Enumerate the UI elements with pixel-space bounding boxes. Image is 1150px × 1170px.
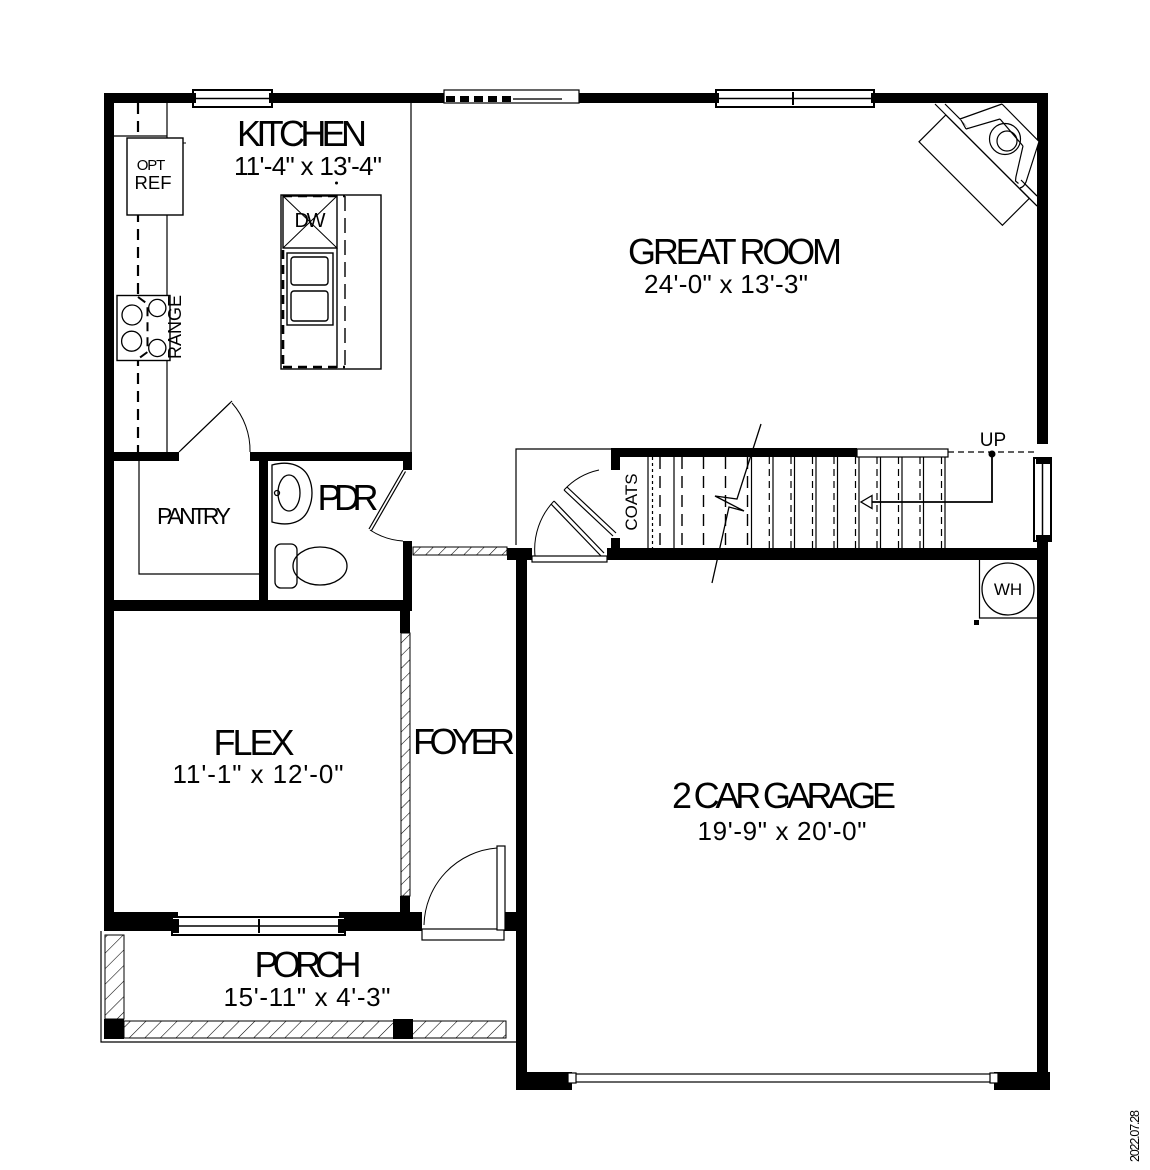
- svg-text:19'-9" x 20'-0": 19'-9" x 20'-0": [698, 816, 867, 846]
- svg-text:FOYER: FOYER: [413, 721, 515, 762]
- svg-text:24'-0" x 13'-3": 24'-0" x 13'-3": [644, 269, 808, 299]
- svg-text:PDR: PDR: [318, 477, 379, 518]
- svg-text:KITCHEN: KITCHEN: [237, 113, 367, 154]
- svg-text:FLEX: FLEX: [214, 722, 295, 763]
- svg-text:11'-1" x 12'-0": 11'-1" x 12'-0": [173, 759, 344, 789]
- svg-text:UP: UP: [980, 430, 1006, 451]
- svg-text:WH: WH: [994, 580, 1022, 599]
- svg-text:GREAT ROOM: GREAT ROOM: [628, 231, 842, 272]
- svg-text:PANTRY: PANTRY: [157, 503, 231, 529]
- svg-text:2 CAR GARAGE: 2 CAR GARAGE: [672, 775, 896, 816]
- svg-text:REF: REF: [135, 172, 172, 193]
- svg-text:COATS: COATS: [622, 473, 641, 530]
- svg-text:PORCH: PORCH: [255, 944, 362, 985]
- svg-text:11'-4" x 13'-4": 11'-4" x 13'-4": [234, 151, 382, 181]
- svg-text:RANGE: RANGE: [165, 295, 185, 359]
- svg-text:15'-11" x 4'-3": 15'-11" x 4'-3": [224, 982, 391, 1012]
- svg-text:2022.07.28: 2022.07.28: [1128, 1110, 1142, 1162]
- svg-text:DW: DW: [295, 210, 326, 232]
